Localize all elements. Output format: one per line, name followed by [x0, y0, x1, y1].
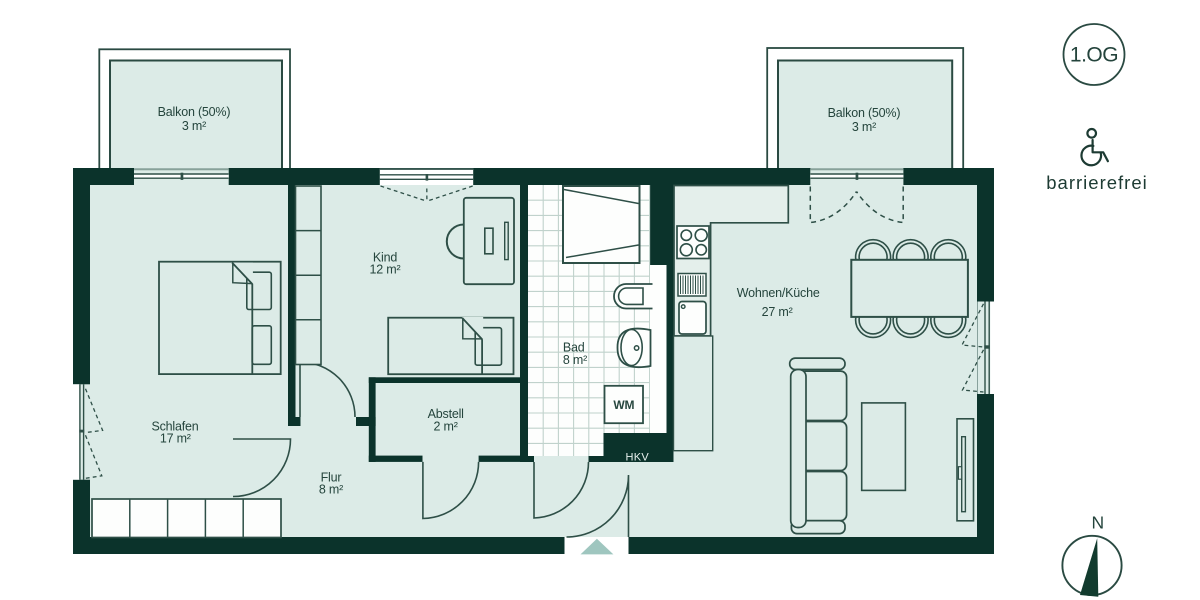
svg-text:8 m²: 8 m² — [563, 353, 587, 367]
svg-text:barrierefrei: barrierefrei — [1046, 172, 1147, 193]
svg-text:3 m²: 3 m² — [852, 120, 876, 134]
svg-text:WM: WM — [613, 398, 634, 412]
svg-text:8 m²: 8 m² — [319, 483, 343, 497]
svg-text:17 m²: 17 m² — [160, 432, 191, 446]
svg-text:27 m²: 27 m² — [762, 305, 793, 319]
svg-text:Balkon (50%): Balkon (50%) — [158, 105, 231, 119]
svg-text:1.OG: 1.OG — [1070, 44, 1118, 67]
svg-text:3 m²: 3 m² — [182, 119, 206, 133]
svg-text:N: N — [1091, 513, 1104, 533]
svg-text:HKV: HKV — [626, 452, 650, 464]
svg-text:2 m²: 2 m² — [433, 420, 457, 434]
svg-text:Wohnen/Küche: Wohnen/Küche — [737, 286, 820, 300]
svg-text:12 m²: 12 m² — [370, 263, 401, 277]
svg-text:Balkon (50%): Balkon (50%) — [828, 106, 901, 120]
